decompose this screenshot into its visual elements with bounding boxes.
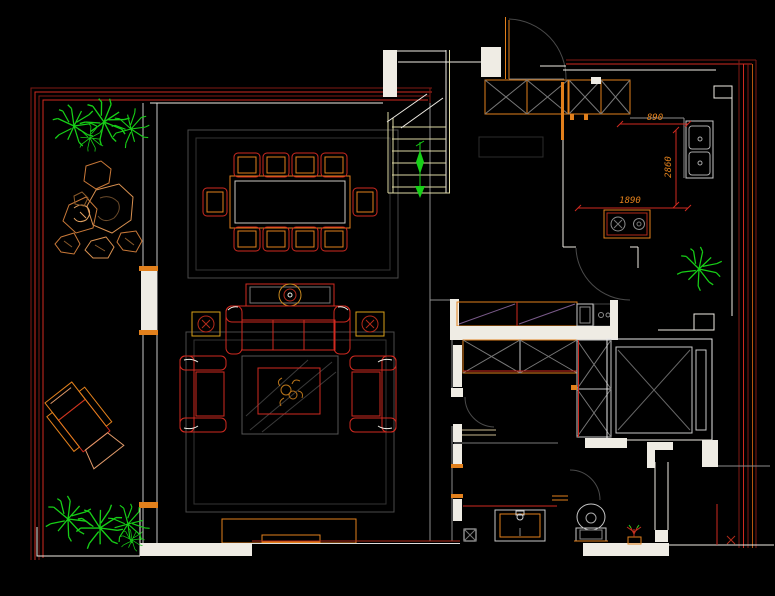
door-swing-arc — [509, 19, 566, 79]
svg-text:1890: 1890 — [619, 196, 641, 206]
dining-rug[interactable] — [188, 130, 398, 278]
entry-door[interactable] — [481, 17, 566, 79]
media-console[interactable] — [246, 284, 334, 306]
toilet-room[interactable] — [552, 438, 770, 544]
balcony[interactable] — [37, 103, 158, 556]
dim-890: 890 — [617, 113, 691, 127]
cad-canvas[interactable]: 890 2860 1890 — [0, 0, 775, 596]
lounge-chair[interactable] — [39, 378, 127, 472]
living-rug[interactable] — [186, 332, 394, 512]
svg-text:890: 890 — [647, 113, 663, 123]
bedroom-door-arc — [465, 397, 494, 427]
rock-garden[interactable] — [55, 161, 142, 258]
entry-cabinets[interactable] — [485, 77, 630, 120]
floor-plan-drawing: 890 2860 1890 — [0, 0, 775, 596]
cabinet-cross-lines — [485, 80, 630, 114]
small-plant — [627, 525, 641, 544]
toilet-door-arc — [570, 470, 600, 500]
up-arrow — [415, 141, 425, 198]
hall-niche — [479, 137, 543, 157]
dining-table[interactable] — [230, 176, 350, 228]
coffee-table[interactable] — [242, 356, 338, 434]
bedroom[interactable] — [450, 299, 618, 442]
plant-right[interactable] — [672, 242, 727, 296]
outer-wall-left-top[interactable] — [31, 88, 432, 560]
dresser — [457, 302, 614, 326]
bathroom-vanity-room[interactable] — [451, 444, 557, 541]
wardrobe-horizontal — [463, 340, 577, 373]
tv-cabinet[interactable] — [222, 519, 356, 543]
balcony-plants-bottom[interactable] — [41, 492, 156, 557]
svg-text:2860: 2860 — [664, 156, 674, 178]
floor-drain — [464, 529, 476, 541]
kitchen-sink — [686, 121, 713, 178]
dim-2860: 2860 — [664, 127, 679, 208]
direction-arrow — [462, 425, 512, 440]
shower-cross — [618, 350, 690, 430]
toilet — [574, 504, 608, 541]
shower-room[interactable] — [607, 314, 714, 440]
window-pier — [141, 271, 157, 331]
kitchen-door-arc — [576, 248, 630, 300]
stair-break-line — [387, 94, 443, 128]
wardrobe-vertical — [571, 340, 611, 437]
armchair-left[interactable] — [180, 356, 226, 432]
vanity-sink — [495, 510, 545, 541]
staircase[interactable] — [383, 50, 487, 198]
armchair-right[interactable] — [350, 356, 396, 432]
dim-1890: 1890 — [575, 196, 691, 211]
cooktop — [604, 210, 650, 238]
dining-chairs[interactable] — [203, 153, 377, 251]
sofa[interactable] — [226, 306, 350, 354]
